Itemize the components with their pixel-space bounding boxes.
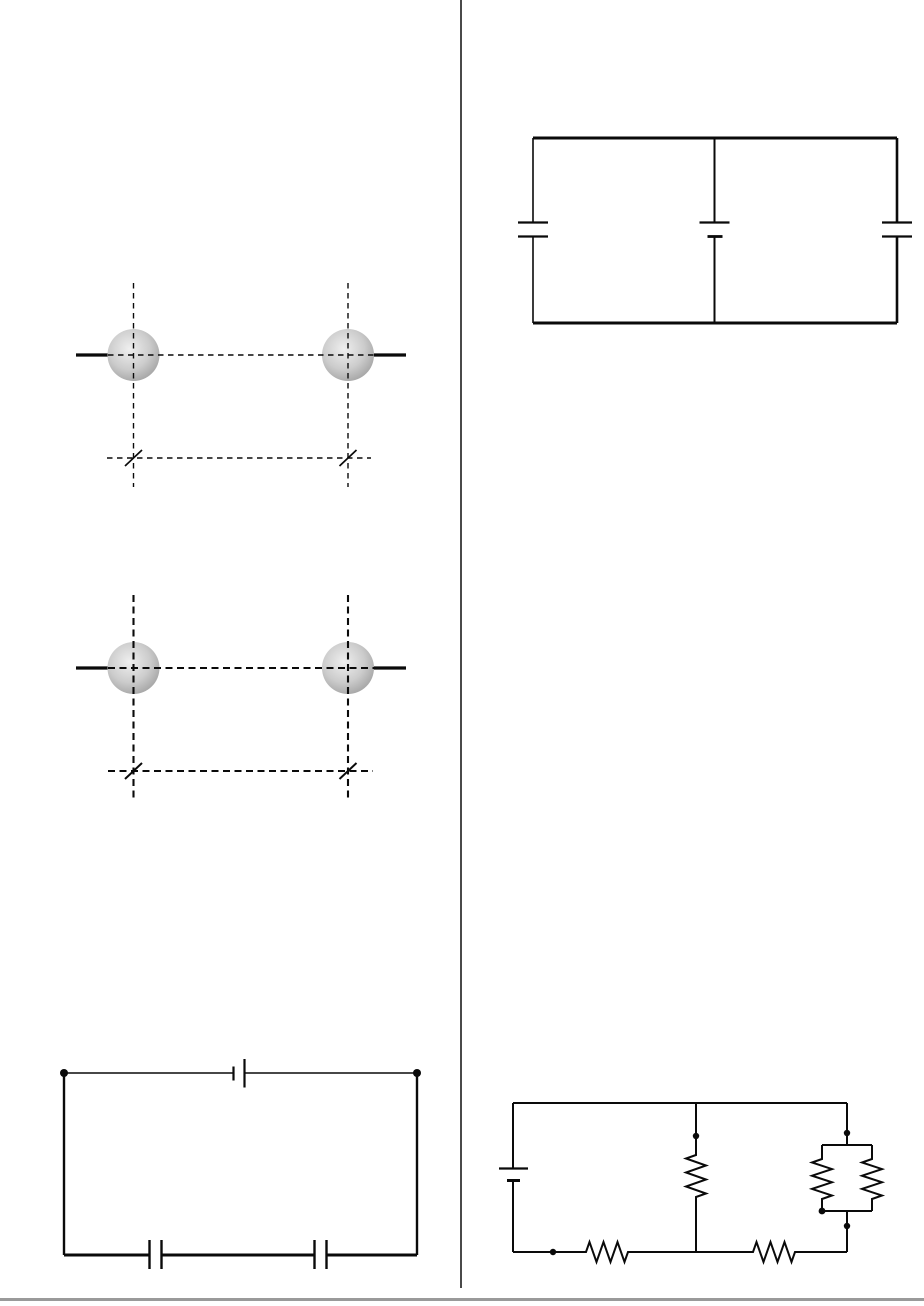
capacitor-symbol-left xyxy=(518,223,548,237)
battery-symbol-middle xyxy=(700,223,730,237)
capacitor-symbol-right xyxy=(315,1240,327,1269)
junction-dot-right-bottom xyxy=(844,1223,850,1229)
column-divider-rule xyxy=(460,0,462,1288)
battery-symbol-left xyxy=(499,1169,528,1181)
junction-dot-parallel-bottom xyxy=(819,1208,826,1215)
figure-circuit-capacitor-network xyxy=(495,105,924,335)
middle-branch-resistor xyxy=(686,1103,706,1252)
resistor-parallel-left xyxy=(812,1145,832,1211)
tick-slash-left xyxy=(125,763,142,779)
junction-dot-right-top xyxy=(844,1130,850,1136)
document-page xyxy=(0,0,924,1306)
junction-dot-bottom-left xyxy=(550,1249,556,1255)
figure-charged-spheres-heavy-dashes xyxy=(60,580,420,810)
capacitor-symbol-right xyxy=(882,223,912,237)
page-footer-rule xyxy=(0,1298,924,1301)
battery-symbol-top xyxy=(234,1059,245,1088)
wire-bottom-with-two-resistors xyxy=(513,1242,847,1262)
capacitor-symbol-left xyxy=(150,1240,162,1269)
figure-charged-spheres-fine-dashes xyxy=(60,270,420,500)
junction-dot-middle-top xyxy=(693,1133,699,1139)
figure-circuit-battery-two-capacitors xyxy=(40,1030,440,1280)
resistor-parallel-right xyxy=(862,1145,882,1211)
figure-circuit-resistor-network xyxy=(490,1080,924,1270)
parallel-resistor-pair xyxy=(812,1145,882,1211)
